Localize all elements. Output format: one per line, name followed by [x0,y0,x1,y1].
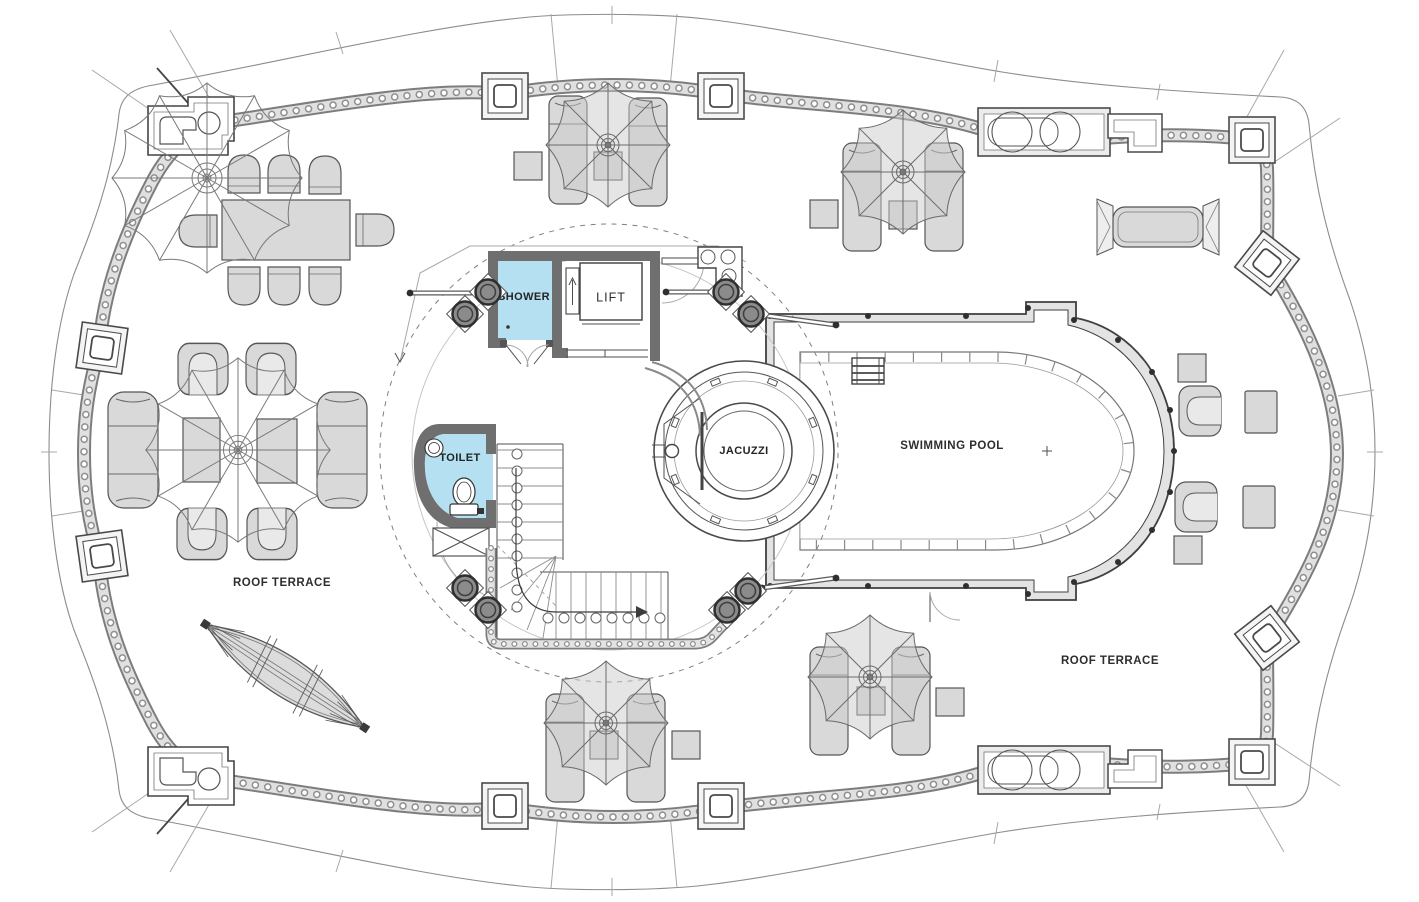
toilet-room: TOILET [414,424,496,528]
jacuzzi: JACUZZI [652,361,834,541]
hammock [187,599,382,752]
stairs [497,444,668,640]
balustrade-post [1235,231,1300,296]
armchair [178,343,228,394]
toilet-label: TOILET [439,452,480,464]
parasol [546,83,670,207]
side-table [1174,536,1202,564]
lounger-set-bottom-center [544,661,700,802]
armchair [246,343,296,394]
bench [1097,199,1219,255]
swimming-pool-label: SWIMMING POOL [900,440,1004,452]
column [733,296,770,333]
coffee-table [1243,486,1275,528]
lift: LIFT [552,251,660,361]
dining-chair [309,156,341,194]
parasol [146,358,330,542]
shower-drain [506,325,510,329]
balustrade-post [1229,117,1275,163]
shower-door [500,340,553,367]
planter-top-right [978,108,1162,156]
balustrade-post [482,783,528,829]
lift-label: LIFT [596,290,626,304]
roof-terrace-floor-plan: SWIMMING POOL JACUZZI [0,0,1419,902]
side-table [257,419,297,483]
armchair [1175,482,1217,532]
lounger-set-top-center [514,83,670,207]
balustrade-post [698,73,744,119]
pool-door [930,592,960,622]
dining-chair [356,214,394,246]
armchair [247,508,297,559]
roof-terrace-label-right: ROOF TERRACE [1061,655,1159,667]
corner-pier-bottom-left [148,747,234,805]
jacuzzi-label: JACUZZI [719,445,768,457]
coffee-table [1245,391,1277,433]
corner-pier-top-left [148,97,234,155]
side-table [1178,354,1206,382]
side-table [810,200,838,228]
parasol [841,110,965,234]
balustrade-post [1229,739,1275,785]
balustrade-post [482,73,528,119]
side-table [936,688,964,716]
service-box [433,528,489,556]
dining-chair [179,215,217,247]
armchair [1179,386,1221,436]
poolside-seating [1174,354,1277,564]
parasol [808,615,932,739]
shower-room: SHOWER [488,251,562,367]
lounger-set-bottom-right [808,615,964,755]
dining-table [222,200,350,260]
dining-chair [309,267,341,305]
balustrade-post [76,530,128,582]
side-table [672,731,700,759]
parasol [544,661,668,785]
dining-chair [268,267,300,305]
roof-terrace-label-left: ROOF TERRACE [233,577,331,589]
side-table [514,152,542,180]
balustrade-post [698,783,744,829]
planter-bottom-right [978,746,1162,794]
toilet-accessory [477,508,484,514]
stair-balusters [512,449,665,623]
lounger-set-top-right [810,110,965,251]
dining-chair [228,155,260,193]
lift-panel [566,268,579,314]
stair-direction-arrow [516,468,648,618]
dining-chair [228,267,260,305]
pool-ladder [852,358,884,384]
core-balustrade [491,548,728,644]
lounge-set [108,343,367,559]
balustrade-post [76,322,128,374]
